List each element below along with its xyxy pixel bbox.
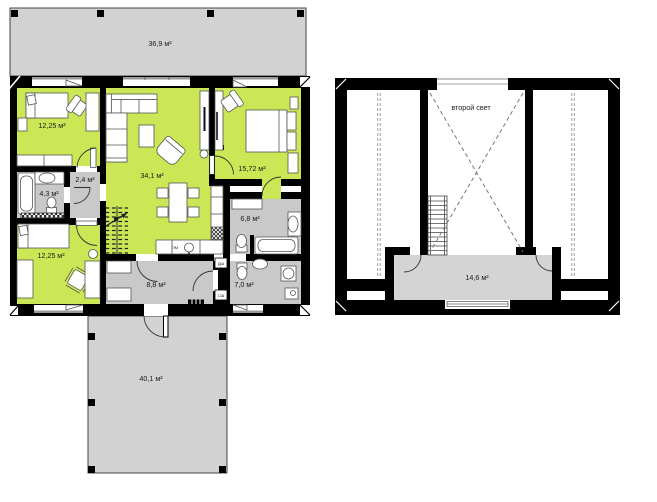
svg-text:ДШ: ДШ	[218, 261, 225, 266]
svg-text:12,25 м²: 12,25 м²	[38, 121, 66, 130]
svg-text:7,0 м²: 7,0 м²	[234, 280, 254, 289]
svg-text:14,6 м²: 14,6 м²	[465, 273, 489, 282]
svg-text:8,8 м²: 8,8 м²	[146, 280, 166, 289]
svg-text:4,3 м²: 4,3 м²	[39, 189, 59, 198]
svg-text:второй свет: второй свет	[451, 103, 491, 112]
svg-text:15,72 м²: 15,72 м²	[238, 164, 266, 173]
svg-text:36,9 м²: 36,9 м²	[148, 39, 172, 48]
svg-text:СШ: СШ	[218, 293, 225, 298]
svg-text:34,1 м²: 34,1 м²	[140, 171, 164, 180]
svg-text:6,8 м²: 6,8 м²	[240, 214, 260, 223]
svg-text:2,4 м²: 2,4 м²	[75, 175, 95, 184]
svg-text:40,1 м²: 40,1 м²	[139, 374, 163, 383]
svg-text:ПМ: ПМ	[172, 245, 178, 250]
svg-text:12,25 м²: 12,25 м²	[37, 251, 65, 260]
